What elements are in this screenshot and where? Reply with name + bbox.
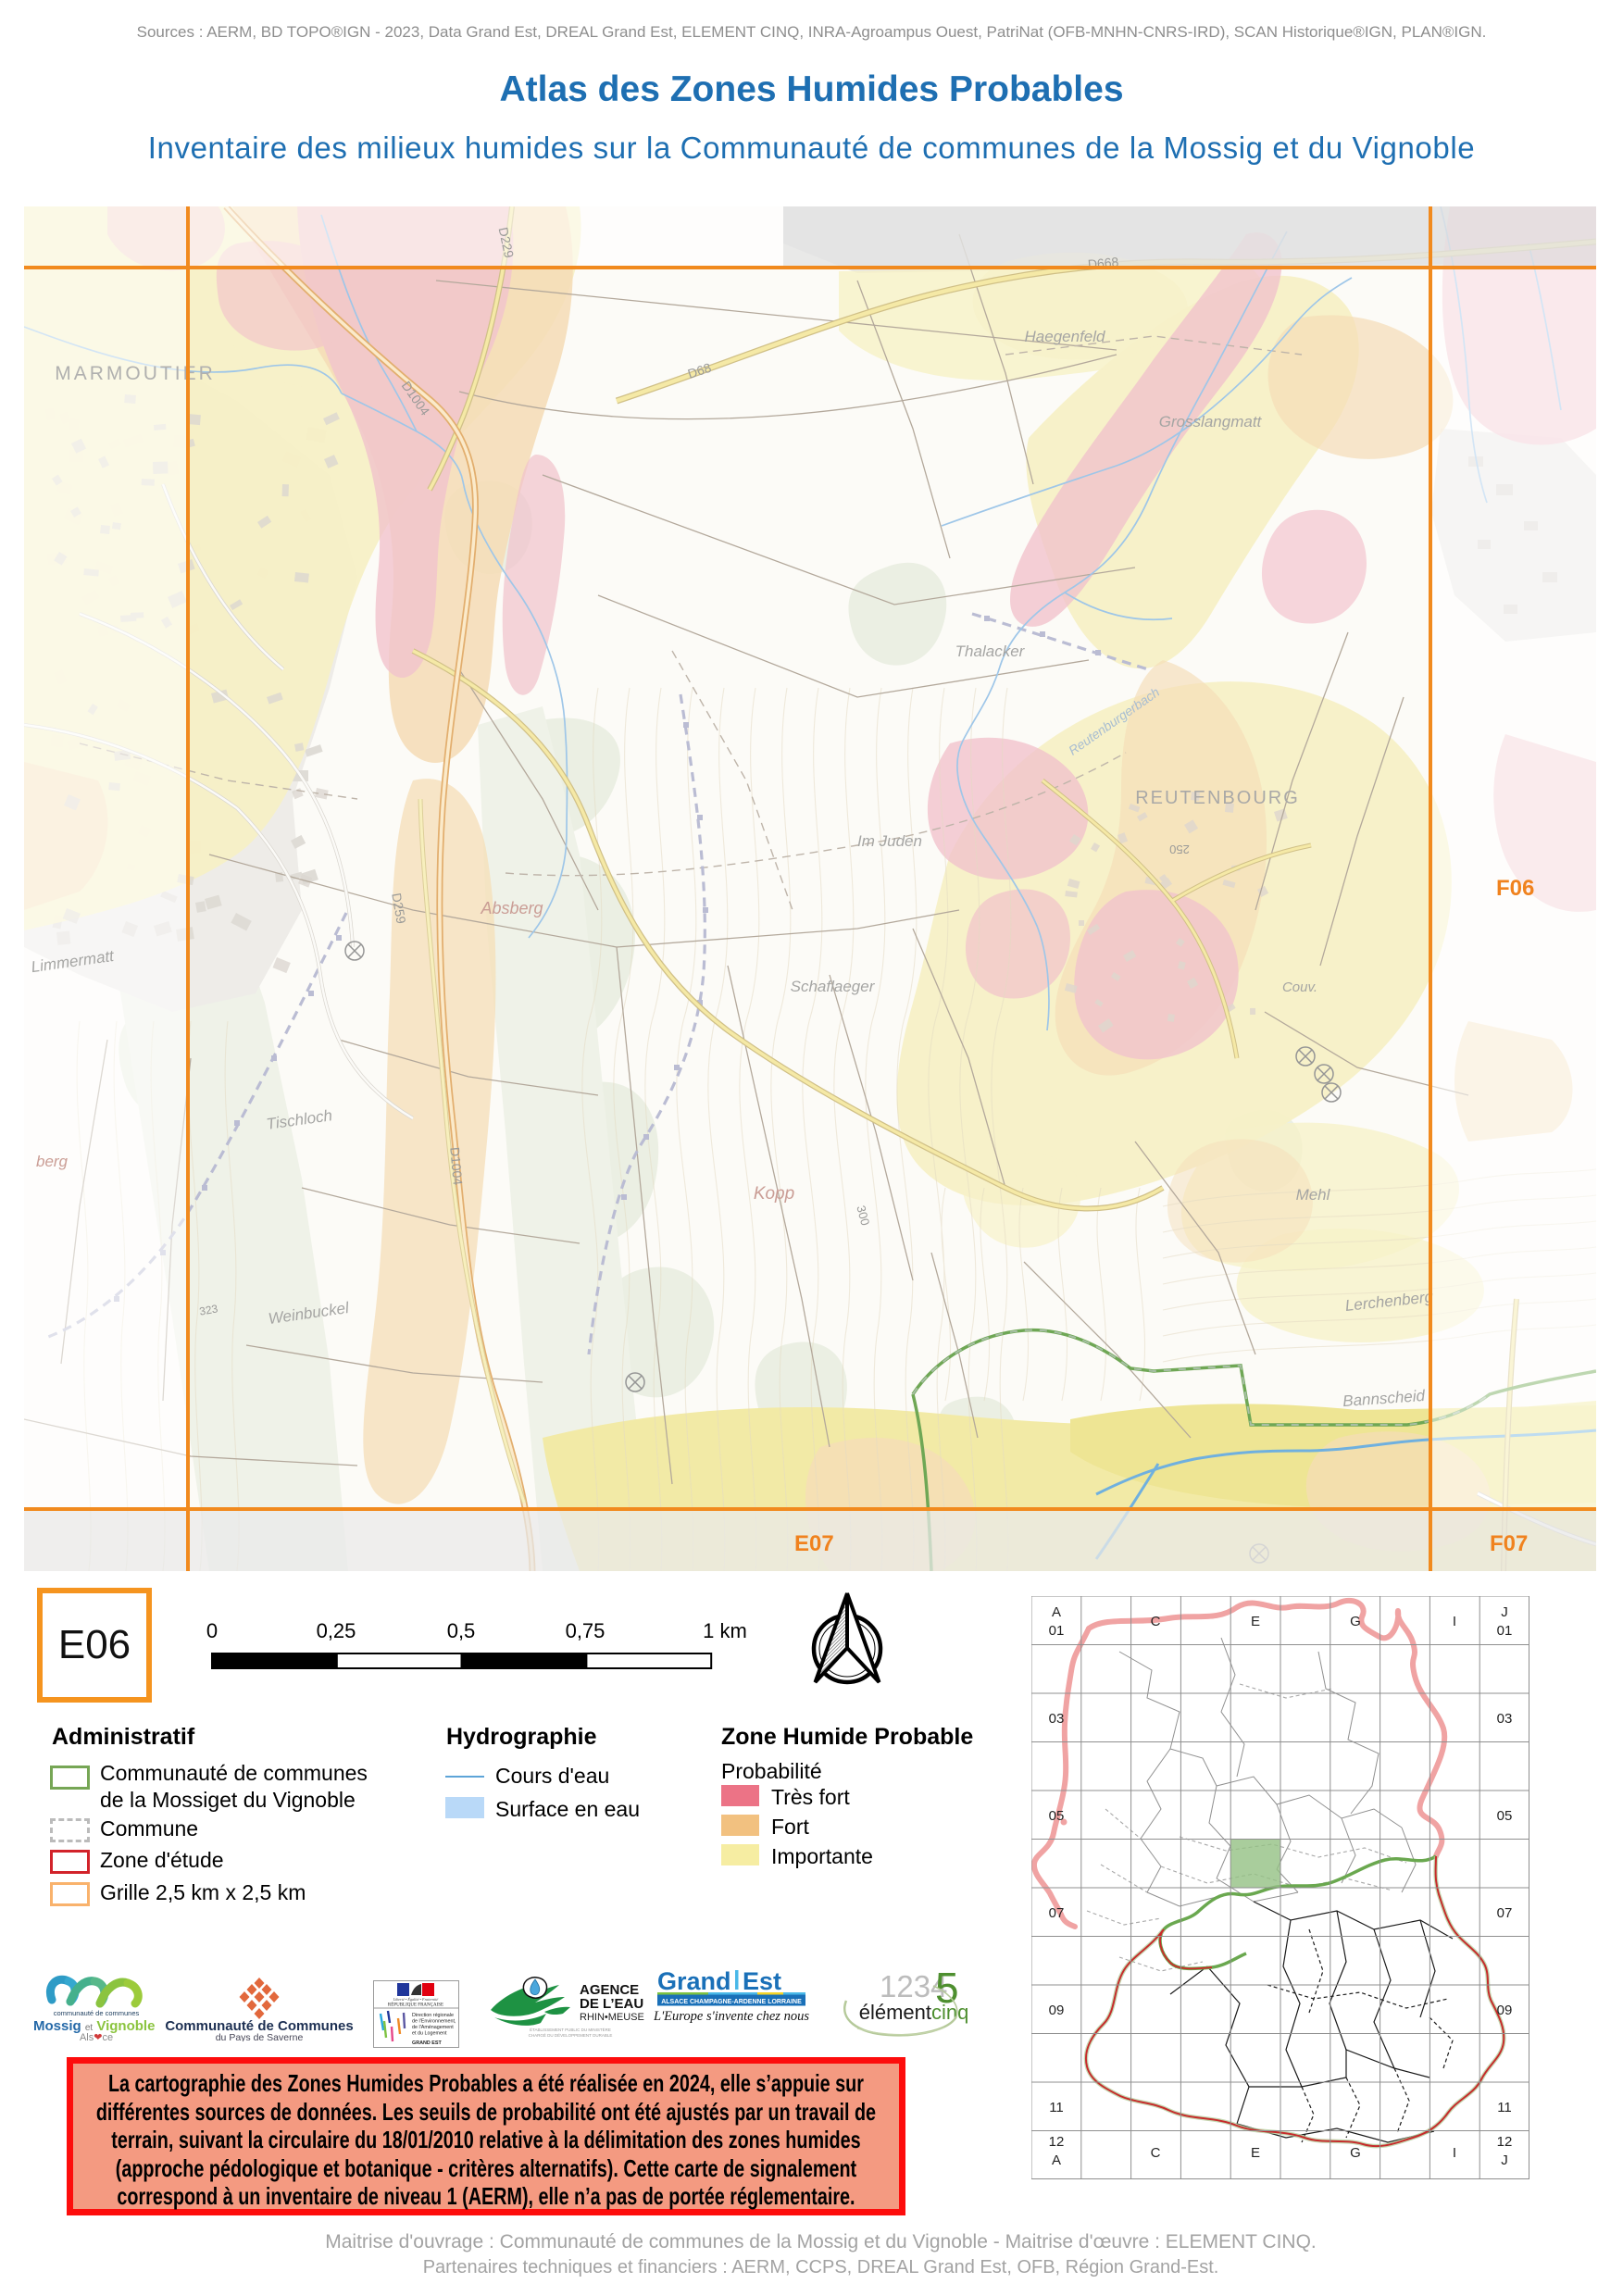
svg-text:C: C	[1151, 2145, 1161, 2161]
svg-text:0,75: 0,75	[566, 1620, 606, 1642]
svg-text:Direction régionale: Direction régionale	[412, 2013, 454, 2018]
svg-text:I: I	[1453, 2145, 1456, 2161]
svg-text:ÉTABLISSEMENT PUBLIC DU MINIST: ÉTABLISSEMENT PUBLIC DU MINISTÈRE	[530, 2027, 611, 2032]
svg-text:GRAND EST: GRAND EST	[412, 2040, 442, 2046]
svg-text:0: 0	[206, 1620, 218, 1642]
svg-text:de l'Aménagement: de l'Aménagement	[412, 2025, 454, 2030]
svg-text:cinq: cinq	[931, 2001, 968, 2024]
svg-text:F07: F07	[1490, 1531, 1528, 1556]
svg-text:12: 12	[1497, 2134, 1513, 2150]
svg-text:et du Logement: et du Logement	[412, 2031, 447, 2037]
svg-text:J: J	[1501, 1604, 1508, 1620]
svg-text:ALSACE CHAMPAGNE-ARDENNE LORRA: ALSACE CHAMPAGNE-ARDENNE LORRAINE	[661, 1999, 802, 2005]
svg-text:Est: Est	[743, 1968, 781, 1995]
svg-text:09: 09	[1049, 2003, 1065, 2018]
svg-text:1 km: 1 km	[703, 1620, 747, 1642]
svg-text:L'Europe s'invente chez nous: L'Europe s'invente chez nous	[654, 2009, 809, 2024]
svg-text:C: C	[1151, 1614, 1161, 1629]
svg-text:09: 09	[1497, 2003, 1513, 2018]
svg-text:01: 01	[1497, 1623, 1513, 1639]
svg-text:03: 03	[1497, 1711, 1513, 1727]
svg-text:07: 07	[1497, 1905, 1513, 1921]
svg-text:F06: F06	[1496, 876, 1534, 901]
svg-text:I: I	[1453, 1614, 1456, 1629]
svg-text:A: A	[1052, 2152, 1061, 2168]
svg-text:de l'Environnement,: de l'Environnement,	[412, 2019, 456, 2025]
svg-text:0,25: 0,25	[317, 1620, 356, 1642]
svg-text:11: 11	[1497, 2100, 1512, 2115]
svg-text:0,5: 0,5	[447, 1620, 476, 1642]
svg-text:G: G	[1350, 2145, 1361, 2161]
svg-text:01: 01	[1049, 1623, 1065, 1639]
svg-text:03: 03	[1049, 1711, 1065, 1727]
svg-text:12: 12	[1049, 2134, 1065, 2150]
svg-text:E: E	[1251, 2145, 1260, 2161]
svg-text:05: 05	[1497, 1808, 1513, 1824]
svg-text:05: 05	[1049, 1808, 1065, 1824]
svg-text:Liberté • Égalité • Fraternité: Liberté • Égalité • Fraternité	[393, 1997, 440, 2002]
svg-text:11: 11	[1049, 2100, 1064, 2115]
svg-text:J: J	[1501, 2152, 1508, 2168]
svg-text:communauté de communes: communauté de communes	[54, 2009, 140, 2017]
svg-text:07: 07	[1049, 1905, 1065, 1921]
svg-text:A: A	[1052, 1604, 1061, 1620]
svg-text:Als❤ce: Als❤ce	[80, 2032, 113, 2041]
svg-text:RHIN•MEUSE: RHIN•MEUSE	[580, 2012, 644, 2023]
svg-text:CHARGÉ DU DÉVELOPPEMENT DURABL: CHARGÉ DU DÉVELOPPEMENT DURABLE	[529, 2032, 613, 2038]
svg-text:Grand: Grand	[657, 1968, 731, 1995]
svg-text:DE L’EAU: DE L’EAU	[580, 1996, 643, 2012]
svg-text:E: E	[1251, 1614, 1260, 1629]
svg-text:élément: élément	[859, 2001, 931, 2024]
svg-text:RÉPUBLIQUE FRANÇAISE: RÉPUBLIQUE FRANÇAISE	[388, 2003, 443, 2008]
svg-text:E07: E07	[794, 1531, 834, 1556]
svg-text:du Pays de Saverne: du Pays de Saverne	[216, 2032, 304, 2041]
svg-text:G: G	[1350, 1614, 1361, 1629]
